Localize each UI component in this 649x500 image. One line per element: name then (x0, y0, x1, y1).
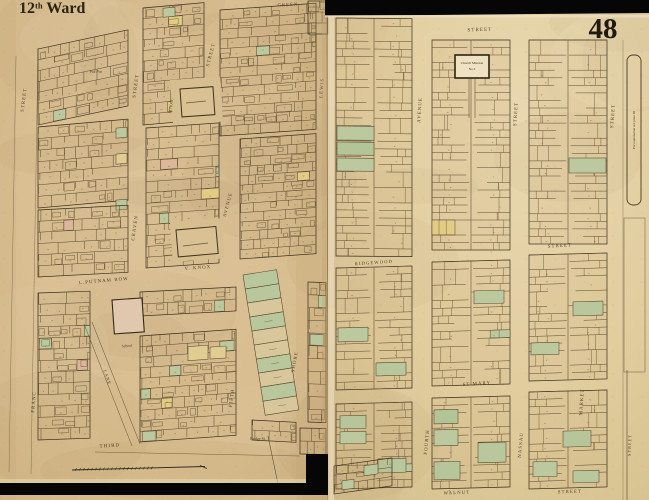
svg-text:WALNUT: WALNUT (443, 491, 470, 497)
svg-text:Pelt Pon: Pelt Pon (89, 70, 103, 74)
svg-text:48: 48 (589, 13, 618, 45)
svg-text:12th Ward: 12th Ward (19, 0, 85, 17)
svg-text:STREET: STREET (467, 28, 492, 34)
svg-text:STREET: STREET (627, 434, 633, 456)
svg-text:For explanation see plate 40: For explanation see plate 40 (632, 111, 636, 150)
svg-text:GREEN: GREEN (277, 2, 298, 8)
svg-text:Bridge St.: Bridge St. (250, 437, 265, 441)
svg-text:Church Mission: Church Mission (461, 61, 484, 65)
svg-text:School: School (122, 344, 133, 349)
svg-text:No 2: No 2 (469, 67, 476, 71)
svg-text:STREET: STREET (558, 490, 582, 496)
